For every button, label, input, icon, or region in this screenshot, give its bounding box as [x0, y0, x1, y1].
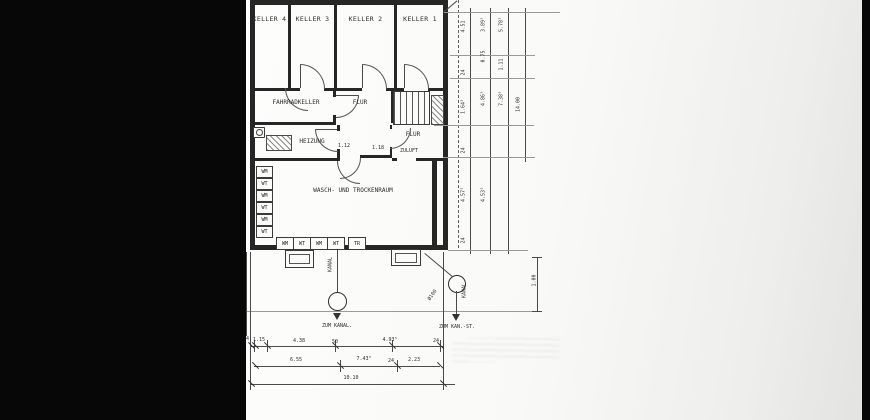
sewer-pipe	[337, 250, 338, 293]
room-label-flur-rechts: FLUR	[398, 132, 428, 138]
lightwell	[285, 250, 314, 268]
room-label-fahrradkeller: FAHRRADKELLER	[258, 100, 334, 106]
room-label-keller1: KELLER 1	[397, 16, 443, 23]
dimension-line	[525, 8, 526, 162]
lightwell-inner	[289, 254, 310, 264]
room-label-keller2: KELLER 2	[337, 16, 394, 23]
letterbox-left	[0, 0, 246, 420]
appliance-box: WT	[256, 226, 273, 238]
wall	[250, 158, 340, 161]
scan-smudge	[452, 338, 560, 362]
site-line	[246, 311, 540, 312]
appliance-box: WM	[276, 237, 294, 250]
dimension-tick	[532, 311, 542, 312]
door-width-112: 1.12	[338, 144, 350, 149]
extension-line	[443, 157, 535, 158]
flow-arrow-icon	[452, 314, 460, 321]
label-zum-kanal: ZUM KANAL.	[310, 324, 364, 329]
dim-label: 4.86⁵	[482, 84, 487, 114]
dim-label: 14.00	[517, 90, 522, 120]
appliance-label: WM	[316, 241, 322, 247]
dim-label: 6.55	[280, 358, 312, 363]
pipe-label: KANAL	[329, 250, 334, 280]
dim-label: 4.51	[462, 12, 467, 42]
dimension-line	[250, 346, 443, 347]
appliance-box: WT	[256, 202, 273, 214]
wall	[428, 88, 443, 91]
extension-line	[250, 252, 251, 390]
dimension-line	[508, 8, 509, 254]
boiler-symbol-icon	[266, 135, 292, 151]
pipe-label: KANAL	[463, 278, 468, 304]
appliance-box: WT	[327, 237, 345, 250]
dim-label: 24	[385, 359, 397, 364]
room-label-keller4: KELLER 4	[251, 16, 288, 23]
label-zum-kan-st: ZUM KAN.-ST.	[428, 325, 486, 330]
flow-arrow-icon	[333, 313, 341, 320]
appliance-label: WT	[261, 205, 267, 211]
dim-label: 4.57⁵	[462, 180, 467, 210]
dim-label: 1.15	[253, 338, 265, 343]
staircase	[393, 91, 430, 125]
label-ks: KS	[420, 247, 426, 252]
symbol-box-icon	[253, 127, 265, 138]
dim-label: 7.38⁵	[500, 84, 505, 114]
appliance-label: WT	[299, 241, 305, 247]
light-shaft	[431, 95, 444, 125]
dim-label: 4	[246, 337, 249, 342]
dim-label: 4.93⁵	[374, 338, 406, 343]
circle-glyph-icon	[256, 129, 263, 136]
sewer-pipe	[456, 291, 457, 314]
appliance-label: WM	[282, 241, 288, 247]
boundary-dashed-line	[458, 0, 459, 248]
wall	[250, 0, 448, 5]
dim-label: 4.38	[284, 339, 314, 344]
appliance-label: WT	[261, 229, 267, 235]
dim-label: 24	[462, 136, 467, 166]
label-zuluft: ZULUFT	[392, 149, 426, 154]
wall	[324, 88, 362, 91]
dim-label: 24	[462, 226, 467, 256]
room-label-waschraum: WASCH- UND TROCKENRAUM	[298, 188, 408, 194]
manhole-circle	[328, 292, 347, 311]
extension-line	[450, 55, 535, 56]
extension-line	[246, 252, 247, 336]
extension-line	[434, 125, 534, 126]
lightwell-inner	[395, 253, 417, 263]
appliance-box: WT	[256, 178, 273, 190]
appliance-box: WM	[256, 214, 273, 226]
dim-label: 24	[430, 339, 442, 344]
appliance-label: WT	[333, 241, 339, 247]
appliance-label: WM	[261, 169, 267, 175]
dim-label: 50	[329, 340, 341, 345]
room-label-keller3: KELLER 3	[291, 16, 334, 23]
dimension-line	[470, 8, 471, 254]
appliance-label: WT	[261, 181, 267, 187]
appliance-label: WM	[261, 193, 267, 199]
dim-label: 24	[462, 58, 467, 88]
appliance-label: TR	[354, 241, 360, 247]
wall	[360, 155, 392, 158]
appliance-box: WM	[256, 166, 273, 178]
room-label-flur-mitte: FLUR	[345, 100, 375, 106]
wall	[250, 122, 336, 125]
dimension-line	[490, 8, 491, 254]
extension-line	[448, 250, 528, 251]
dim-label: 7.43⁵	[348, 357, 380, 362]
appliance-box: WT	[293, 237, 311, 250]
door-width-118: 1.18	[372, 146, 384, 151]
wall	[392, 158, 397, 161]
wall	[250, 0, 255, 250]
scanned-floor-plan: KELLER 4 KELLER 3 KELLER 2 KELLER 1 FAHR…	[0, 0, 870, 420]
dim-label: 2.23	[400, 358, 428, 363]
dim-label: 5.78⁵	[500, 10, 505, 40]
appliance-box: WM	[256, 190, 273, 202]
appliance-label: WM	[261, 217, 267, 223]
wall	[416, 158, 443, 161]
dimension-tick	[532, 257, 542, 258]
dim-label: 0.75	[482, 42, 487, 72]
dim-label: 1.00	[533, 266, 538, 296]
wall	[432, 161, 437, 245]
appliance-box: WM	[310, 237, 328, 250]
letterbox-right	[862, 0, 870, 420]
dim-label-total: 10.10	[334, 376, 368, 381]
dim-label: 1.64⁵	[462, 92, 467, 122]
dim-label: 4.53⁵	[482, 180, 487, 210]
appliance-box: TR	[348, 237, 366, 250]
dim-label: 3.89⁵	[482, 10, 487, 40]
room-label-heizung: HEIZUNG	[288, 139, 336, 145]
lightwell	[391, 249, 421, 266]
dim-label: 1.11	[500, 50, 505, 80]
dimension-line	[254, 366, 440, 367]
dimension-line	[250, 384, 455, 385]
extension-line	[443, 252, 444, 390]
